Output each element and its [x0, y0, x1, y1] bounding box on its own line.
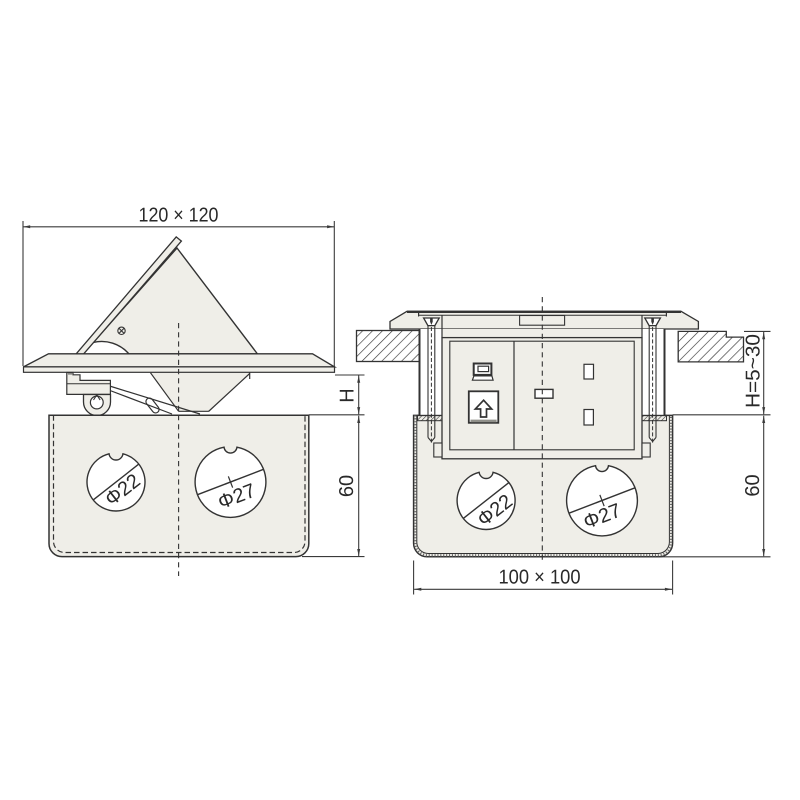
- svg-text:60: 60: [742, 474, 764, 496]
- svg-text:100 × 100: 100 × 100: [499, 567, 581, 589]
- svg-text:H=5~30: H=5~30: [742, 334, 764, 408]
- svg-text:60: 60: [336, 475, 358, 497]
- svg-text:120 × 120: 120 × 120: [139, 205, 219, 227]
- svg-text:H: H: [336, 388, 358, 402]
